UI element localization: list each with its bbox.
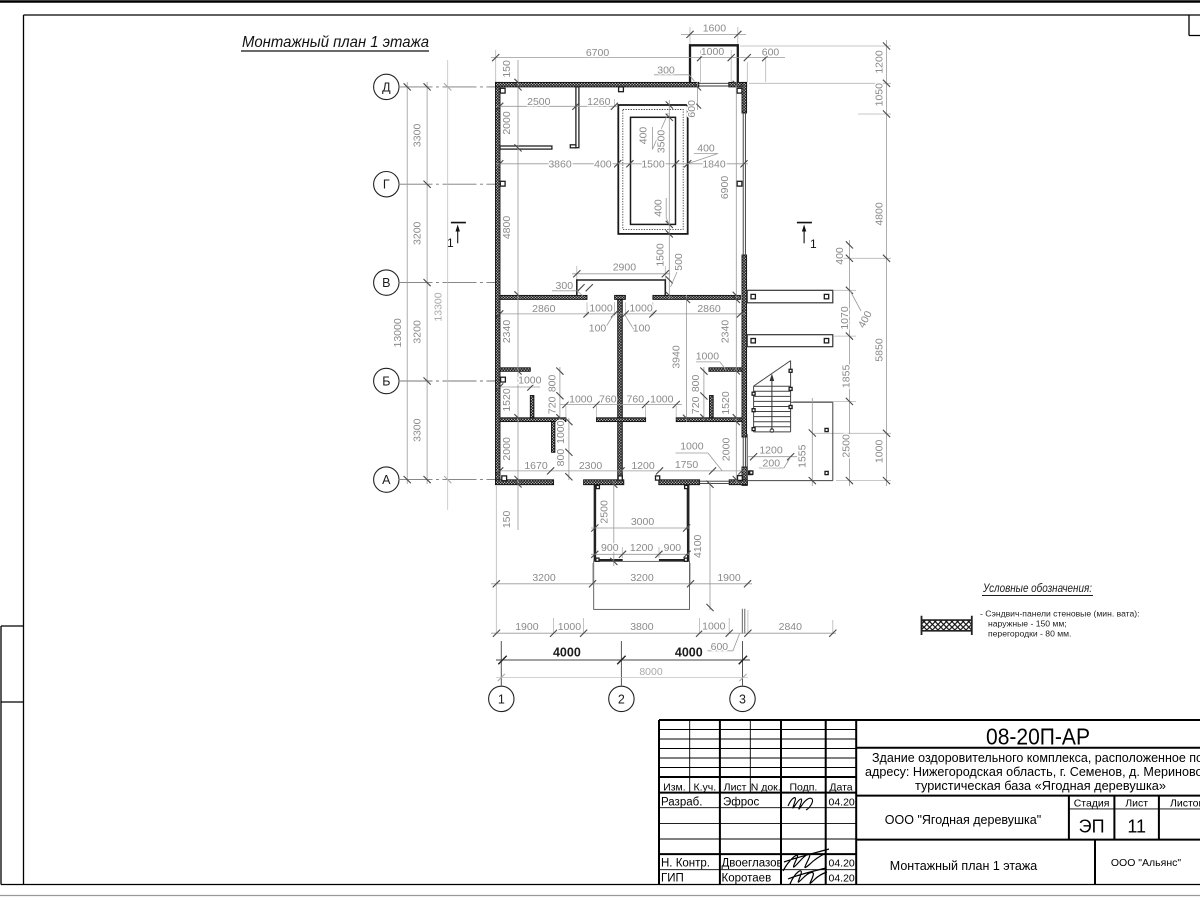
svg-text:1200: 1200 (874, 50, 886, 74)
svg-text:400: 400 (594, 158, 612, 170)
svg-text:1900: 1900 (717, 572, 741, 584)
svg-text:1900: 1900 (515, 621, 539, 633)
svg-text:2000: 2000 (721, 438, 733, 462)
svg-text:4800: 4800 (874, 202, 886, 226)
svg-text:2000: 2000 (501, 111, 513, 135)
svg-text:2900: 2900 (613, 262, 637, 274)
svg-text:А: А (382, 473, 391, 487)
svg-text:04.20: 04.20 (829, 797, 855, 809)
svg-text:3200: 3200 (411, 320, 423, 344)
svg-text:1050: 1050 (874, 83, 886, 107)
svg-text:1855: 1855 (841, 365, 853, 389)
svg-text:Здание оздоровительного компле: Здание оздоровительного комплекса, распо… (872, 751, 1200, 765)
svg-text:Изм.: Изм. (663, 782, 686, 794)
svg-text:1000: 1000 (680, 441, 704, 453)
svg-text:900: 900 (601, 542, 619, 554)
svg-text:1520: 1520 (501, 388, 513, 412)
svg-text:1000: 1000 (558, 621, 582, 633)
svg-text:3500: 3500 (656, 130, 668, 154)
svg-text:3200: 3200 (411, 221, 423, 245)
svg-text:2500: 2500 (598, 500, 610, 524)
svg-text:1000: 1000 (702, 620, 726, 632)
svg-text:100: 100 (589, 322, 607, 334)
svg-text:Монтажный план 1 этажа: Монтажный план 1 этажа (242, 34, 429, 51)
svg-text:Подп.: Подп. (789, 782, 817, 794)
svg-text:04.20: 04.20 (829, 858, 855, 870)
svg-text:ООО "Ягодная деревушка": ООО "Ягодная деревушка" (885, 813, 1041, 827)
svg-text:300: 300 (657, 64, 675, 76)
svg-text:500: 500 (673, 253, 685, 271)
svg-text:туристическая база «Ягодная де: туристическая база «Ягодная деревушка» (915, 779, 1166, 793)
svg-text:3000: 3000 (631, 516, 655, 528)
svg-text:13000: 13000 (392, 318, 404, 347)
svg-text:800: 800 (547, 374, 559, 392)
svg-text:1000: 1000 (629, 303, 653, 315)
svg-text:200: 200 (763, 457, 781, 469)
svg-text:Г: Г (383, 178, 390, 192)
svg-text:5850: 5850 (874, 338, 886, 362)
svg-text:2340: 2340 (501, 320, 513, 344)
svg-text:1555: 1555 (796, 444, 808, 468)
svg-text:1000: 1000 (874, 440, 886, 464)
svg-text:4800: 4800 (501, 216, 513, 240)
svg-text:Д: Д (382, 80, 391, 94)
svg-text:ЭП: ЭП (1079, 817, 1105, 837)
svg-text:3800: 3800 (630, 621, 654, 633)
svg-text:100: 100 (633, 322, 651, 334)
svg-text:13300: 13300 (432, 292, 444, 321)
svg-text:8000: 8000 (639, 666, 663, 678)
svg-text:300: 300 (556, 280, 574, 292)
svg-text:600: 600 (686, 100, 698, 118)
svg-text:1670: 1670 (524, 460, 548, 472)
svg-text:600: 600 (711, 641, 729, 653)
svg-text:ГИП: ГИП (661, 873, 684, 885)
svg-text:1: 1 (810, 237, 817, 251)
svg-text:6700: 6700 (586, 47, 610, 59)
svg-text:4000: 4000 (675, 645, 703, 659)
svg-text:11: 11 (1127, 817, 1146, 837)
svg-text:150: 150 (501, 510, 513, 528)
svg-text:1000: 1000 (569, 393, 593, 405)
svg-text:Лист: Лист (1125, 797, 1148, 809)
svg-text:800: 800 (690, 374, 702, 392)
svg-text:1840: 1840 (702, 158, 726, 170)
svg-text:3940: 3940 (670, 345, 682, 369)
svg-text:400: 400 (834, 247, 846, 265)
svg-text:1000: 1000 (518, 375, 542, 387)
svg-text:1000: 1000 (589, 303, 613, 315)
svg-text:1000: 1000 (701, 46, 725, 58)
svg-text:3300: 3300 (411, 124, 423, 148)
svg-text:720: 720 (690, 396, 702, 414)
svg-text:Разраб.: Разраб. (661, 797, 702, 809)
svg-text:3200: 3200 (532, 572, 556, 584)
svg-text:наружные - 150 мм;: наружные - 150 мм; (988, 619, 1067, 629)
svg-text:2500: 2500 (527, 96, 551, 108)
svg-text:1520: 1520 (720, 391, 732, 415)
svg-text:760: 760 (599, 393, 617, 405)
svg-text:2860: 2860 (532, 303, 556, 315)
svg-text:2300: 2300 (579, 460, 603, 472)
svg-text:2340: 2340 (719, 320, 731, 344)
svg-text:4100: 4100 (692, 534, 704, 558)
svg-text:2500: 2500 (841, 434, 853, 458)
svg-text:1: 1 (447, 236, 454, 250)
svg-text:Коротаев: Коротаев (722, 873, 772, 885)
svg-text:1500: 1500 (641, 158, 665, 170)
svg-text:Двоеглазов: Двоеглазов (722, 858, 783, 870)
svg-text:900: 900 (664, 542, 682, 554)
svg-text:1000: 1000 (650, 393, 674, 405)
svg-text:1260: 1260 (587, 96, 611, 108)
svg-text:400: 400 (637, 127, 649, 145)
svg-text:1000: 1000 (555, 420, 567, 444)
svg-text:400: 400 (697, 143, 715, 155)
svg-text:Монтажный план 1 этажа: Монтажный план 1 этажа (890, 859, 1037, 873)
svg-text:6900: 6900 (719, 176, 731, 200)
svg-text:1200: 1200 (631, 460, 655, 472)
svg-text:3200: 3200 (630, 572, 654, 584)
svg-text:4000: 4000 (553, 645, 581, 659)
svg-text:3860: 3860 (548, 158, 572, 170)
svg-text:400: 400 (653, 199, 665, 217)
svg-text:1600: 1600 (703, 22, 727, 34)
svg-text:800: 800 (555, 449, 567, 467)
svg-text:3300: 3300 (411, 418, 423, 442)
svg-text:2000: 2000 (501, 437, 513, 461)
svg-text:Н. Контр.: Н. Контр. (661, 858, 710, 870)
svg-text:760: 760 (627, 393, 645, 405)
svg-text:720: 720 (547, 396, 559, 414)
svg-text:1000: 1000 (696, 351, 720, 363)
svg-text:Дата: Дата (829, 782, 852, 794)
svg-text:1500: 1500 (654, 243, 666, 267)
svg-text:3: 3 (739, 692, 746, 706)
svg-text:Лист: Лист (724, 782, 747, 794)
svg-text:N док.: N док. (751, 782, 781, 794)
svg-text:Эфрос: Эфрос (723, 797, 760, 809)
svg-text:2860: 2860 (697, 303, 721, 315)
svg-text:Листов: Листов (1170, 797, 1200, 809)
svg-text:К.уч.: К.уч. (693, 782, 716, 794)
svg-text:Условные обозначения:: Условные обозначения: (982, 583, 1092, 595)
svg-text:08-20П-АР: 08-20П-АР (986, 724, 1090, 750)
svg-text:ООО "Альянс": ООО "Альянс" (1111, 857, 1181, 869)
svg-text:1200: 1200 (759, 445, 783, 457)
svg-text:В: В (382, 276, 390, 290)
svg-text:- Сэндвич-панели стеновые (мин: - Сэндвич-панели стеновые (мин. вата): (980, 609, 1140, 619)
svg-text:150: 150 (501, 60, 513, 78)
svg-text:перегородки - 80 мм.: перегородки - 80 мм. (988, 629, 1071, 639)
svg-text:1750: 1750 (675, 459, 699, 471)
svg-text:адресу: Нижегородская область,: адресу: Нижегородская область, г. Семено… (865, 765, 1200, 779)
svg-text:1: 1 (498, 692, 505, 706)
svg-text:2: 2 (618, 692, 625, 706)
svg-text:04.20: 04.20 (829, 873, 855, 885)
svg-text:Б: Б (382, 374, 390, 388)
svg-text:1200: 1200 (630, 542, 654, 554)
svg-text:2840: 2840 (779, 621, 803, 633)
svg-text:600: 600 (762, 46, 780, 58)
svg-text:1070: 1070 (839, 306, 851, 330)
svg-text:Стадия: Стадия (1074, 797, 1110, 809)
